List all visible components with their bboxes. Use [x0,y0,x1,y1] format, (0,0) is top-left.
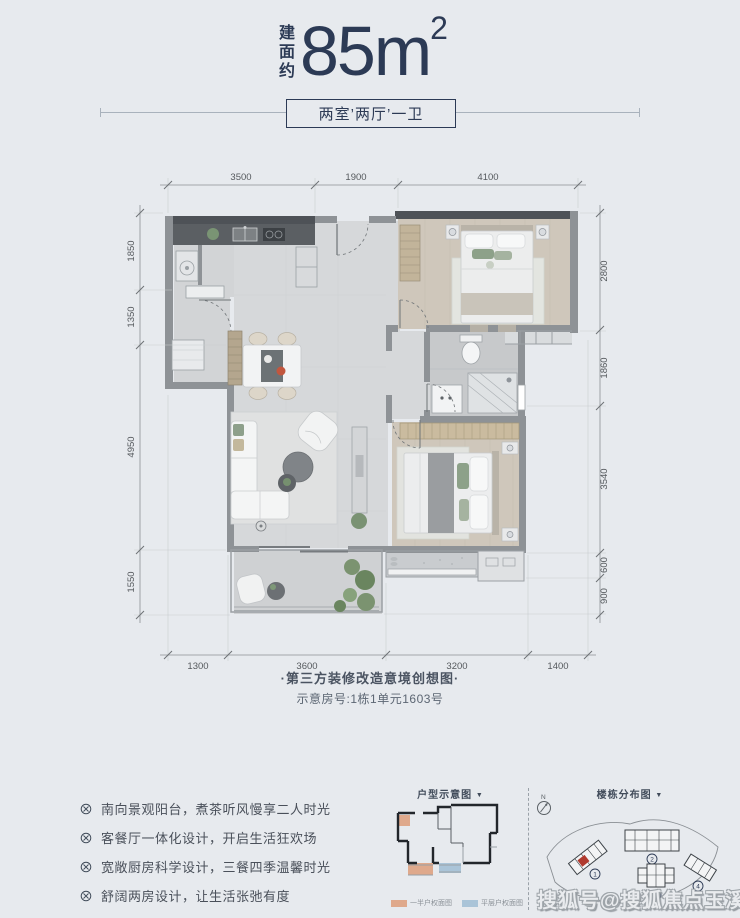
toilet-icon [462,342,480,364]
compass-north-label: N [541,794,546,801]
dim-left-2: 1350 [126,306,137,327]
floor-plan: 3500 1900 4100 1300 3600 3200 1400 1850 … [0,155,740,680]
area-number: 85m [300,12,430,90]
sink-icon [432,385,462,413]
vertical-dashed-divider [528,788,529,910]
balcony-table-icon [267,582,285,600]
area-superscript: 2 [430,10,448,46]
list-item: 南向景观阳台，煮茶听风慢享二人时光 [80,794,331,823]
legend-item: 一半户权面图 [391,898,452,908]
building-number: 1 [593,872,597,879]
mini-unit-plan [393,799,511,895]
dim-left-1: 1850 [126,240,137,261]
list-item: 客餐厅一体化设计，开启生活狂欢场 [80,823,331,852]
site-map-title: 楼栋分布图 ▼ [560,786,700,801]
console-table-icon [186,286,224,298]
legend-item: 平层户权面图 [462,898,523,908]
list-item: 宽敞厨房科学设计，三餐四季温馨时光 [80,852,331,881]
layout-label-box: 两室’两厅’一卫 [286,99,456,128]
feature-text: 南向景观阳台，煮茶听风慢享二人时光 [101,799,331,818]
triangle-down-icon: ▼ [476,792,484,799]
dim-top-1: 3500 [230,172,251,183]
divider-endcap-right [639,108,640,117]
divider-endcap-left [100,108,101,117]
dim-top-3: 4100 [477,172,498,183]
legend-label: 一半户权面图 [410,898,452,908]
list-item: 舒阔两房设计，让生活张弛有度 [80,881,331,910]
triangle-down-icon: ▼ [655,792,663,799]
dim-right-3: 3540 [599,468,610,489]
plant-icon [351,513,367,529]
dim-right-1: 2800 [599,260,610,281]
feature-text: 宽敞厨房科学设计，三餐四季温馨时光 [101,857,331,876]
half-area-zone [399,815,410,826]
feature-text: 舒阔两房设计，让生活张弛有度 [101,886,290,905]
area-value: 85m2 [300,12,448,89]
plant-icon [207,228,219,240]
building-1 [569,840,608,874]
dim-right-2: 1860 [599,357,610,378]
site-map-title-text: 楼栋分布图 [597,790,652,801]
watermark: 搜狐号@搜狐焦点玉溪站 [537,884,740,913]
legend-label: 平层户权面图 [481,898,523,908]
area-prefix: 建面约 [272,24,296,86]
blue-swatch-icon [462,900,478,907]
building-2 [625,830,679,851]
shoe-cabinet-icon [172,340,204,370]
orange-swatch-icon [391,900,407,907]
dim-right-4: 600 [599,557,610,573]
dim-left-3: 4950 [126,436,137,457]
dim-top-2: 1900 [345,172,366,183]
gem-bullet-icon [80,803,92,815]
laundry-balcony [176,251,198,281]
gem-bullet-icon [80,890,92,902]
dim-right-5: 900 [599,588,610,604]
dim-left-4: 1550 [126,571,137,592]
feature-list: 南向景观阳台，煮茶听风慢享二人时光 客餐厅一体化设计，开启生活狂欢场 宽敞厨房科… [80,794,331,910]
floorplan-page: 建面约 85m2 两室’两厅’一卫 [0,0,740,918]
plan-caption: ·第三方装修改造意境创想图· [0,668,740,687]
feature-text: 客餐厅一体化设计，开启生活狂欢场 [101,828,317,847]
mini-plan-legend: 一半户权面图 平层户权面图 [391,898,523,908]
wardrobe-icon [400,225,420,281]
unit-number-caption: 示意房号:1栋1单元1603号 [0,690,740,707]
area-header: 建面约 85m2 [272,12,448,89]
gem-bullet-icon [80,861,92,873]
gem-bullet-icon [80,832,92,844]
wardrobe-icon [400,423,519,439]
building-number: 2 [650,857,654,864]
